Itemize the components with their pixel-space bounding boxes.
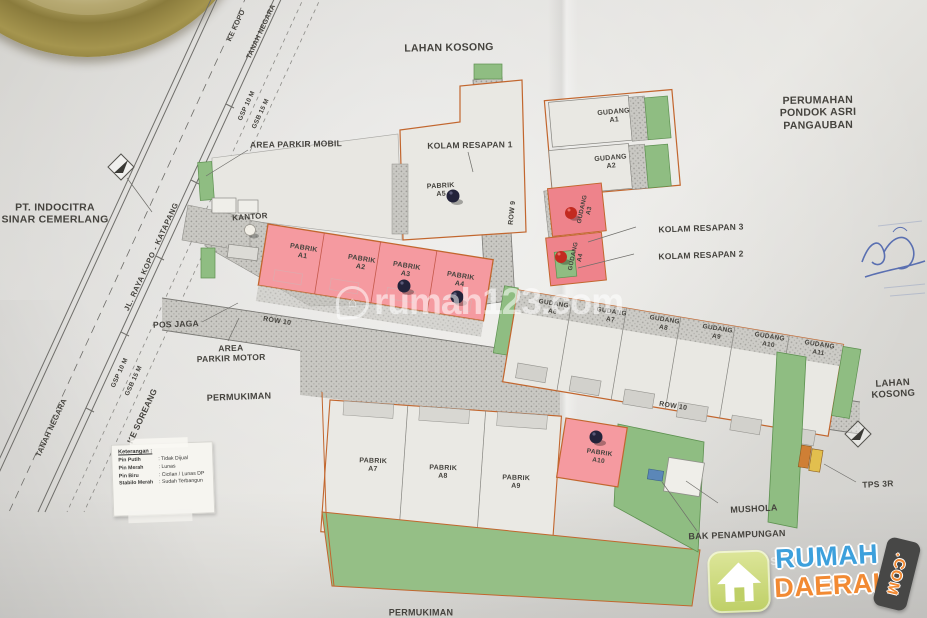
green-strip-west-1 [198, 162, 215, 201]
logo-com-tag: .COM [872, 536, 922, 612]
label-permukiman-bottom: PERMUKIMAN [389, 608, 454, 618]
legend-key: Stabilo Merah [119, 480, 159, 487]
label-pabrik-a7: PABRIK A7 [359, 457, 387, 474]
label-pabrik-a8: PABRIK A8 [429, 464, 457, 481]
legend-value: : Lunas [158, 463, 175, 470]
label-pt-indocitra: PT. INDOCITRA SINAR CEMERLANG [1, 202, 108, 227]
label-tps-3r: TPS 3R [862, 478, 894, 490]
label-pabrik-a5: PABRIK A5 [427, 182, 456, 200]
label-pos-jaga: POS JAGA [153, 318, 199, 330]
gray-strip-a5 [392, 164, 408, 234]
pin-red-gudang-a3 [565, 207, 577, 219]
label-lahan-kosong-right: LAHAN KOSONG [871, 377, 916, 402]
bak-penampungan-block [647, 469, 663, 481]
site-plan-drawing [0, 0, 927, 618]
label-area-parkir-motor: AREA PARKIR MOTOR [196, 342, 265, 364]
legend-key: Pin Putih [118, 456, 158, 463]
mushola-block [664, 457, 705, 496]
pin-white-kantor [245, 225, 256, 236]
legend-value: : Cicilan / Lunas DP [159, 470, 205, 478]
pin-dark-pabrik-a3 [398, 280, 411, 293]
pin-dark-pabrik-a4 [451, 291, 464, 304]
legend-value: : Sudah Terbangun [159, 478, 203, 486]
logo-house-icon [707, 549, 771, 613]
legend-value: : Tidak Dijual [158, 455, 188, 462]
gudang-a1-a2-cluster [544, 90, 680, 197]
green-cap-row9 [474, 64, 502, 79]
pabrik-a5-block [400, 80, 526, 240]
label-permukiman-left: PERMUKIMAN [207, 391, 272, 404]
legend-note: Keterangan : Pin Putih : Tidak Dijual Pi… [111, 441, 215, 517]
label-pabrik-a9: PABRIK A9 [502, 474, 530, 491]
rumah-daerah-logo: RUMAH DAERAH .COM [703, 536, 918, 618]
site-plan-photo: LAHAN KOSONG PERUMAHAN PONDOK ASRI PANGA… [0, 0, 927, 618]
pin-red-gudang-a4 [555, 251, 567, 263]
pin-dark-pabrik-a10 [590, 431, 603, 444]
legend-key: Pin Biru [119, 472, 159, 479]
label-kolam-resapan-1: KOLAM RESAPAN 1 [427, 139, 512, 151]
label-gudang-a2: GUDANG A2 [594, 153, 628, 172]
legend-key: Pin Merah [118, 464, 158, 471]
label-perumahan: PERUMAHAN PONDOK ASRI PANGAUBAN [763, 93, 873, 132]
signature-stamp [862, 227, 925, 277]
label-lahan-kosong-top: LAHAN KOSONG [404, 41, 494, 55]
tps-3r-block [798, 445, 823, 472]
label-gudang-a1: GUDANG A1 [597, 107, 631, 126]
logo-com-text: .COM [883, 551, 910, 597]
green-strip-west-2 [201, 248, 215, 278]
label-area-parkir-mobil: AREA PARKIR MOBIL [250, 138, 342, 150]
legend-row: Stabilo Merah : Sudah Terbangun [119, 478, 213, 487]
